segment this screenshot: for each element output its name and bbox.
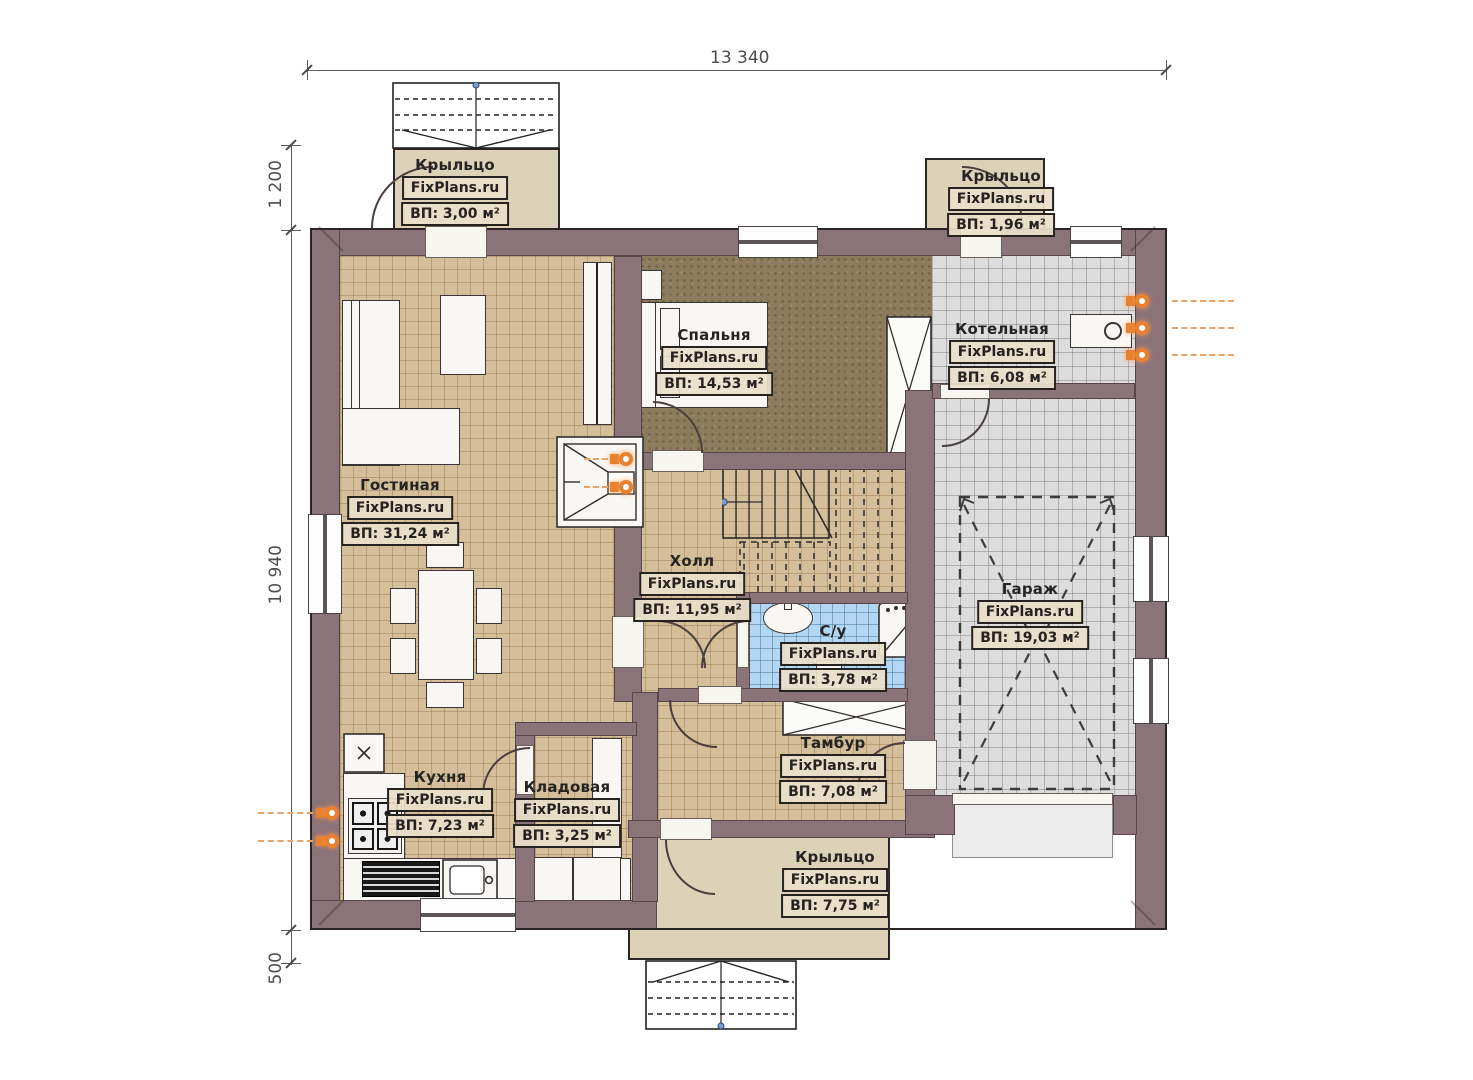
room-area: ВП: 31,24 м² — [341, 522, 459, 546]
utility-square — [1126, 296, 1135, 306]
room-area: ВП: 3,00 м² — [401, 202, 509, 226]
room-label-porch-bottom: Крыльцо FixPlans.ru ВП: 7,75 м² — [781, 848, 889, 918]
utility-line — [1172, 327, 1234, 329]
utility-ring — [1135, 294, 1149, 308]
entry-steps-top-icon — [392, 82, 560, 149]
room-area: ВП: 19,03 м² — [971, 626, 1089, 650]
brand-watermark: FixPlans.ru — [948, 187, 1054, 211]
wall-storage-top — [515, 722, 637, 736]
window-garage-1 — [1133, 536, 1169, 602]
dimension-line-left — [291, 145, 292, 965]
room-area: ВП: 14,53 м² — [655, 372, 773, 396]
kitchen-sink-icon — [442, 859, 498, 901]
utility-connection-icon — [316, 806, 339, 820]
brand-watermark: FixPlans.ru — [782, 868, 888, 892]
brand-watermark: FixPlans.ru — [639, 572, 745, 596]
window-kitchen — [420, 898, 516, 932]
window-living — [308, 514, 342, 614]
dimension-line-top — [307, 70, 1167, 71]
door-opening-vestibule-garage — [903, 740, 937, 790]
room-area: ВП: 3,78 м² — [779, 668, 887, 692]
room-name: Кухня — [414, 768, 467, 786]
wall-garage-bottom-left — [905, 795, 955, 835]
chair — [390, 638, 416, 674]
utility-connection-icon — [1126, 294, 1149, 308]
utility-line — [258, 840, 313, 842]
door-opening-hall-kitchen — [612, 616, 644, 668]
garage-door-opening — [952, 793, 1113, 805]
stove-burner — [352, 802, 374, 825]
utility-connection-icon — [316, 834, 339, 848]
room-area: ВП: 11,95 м² — [633, 598, 751, 622]
window-garage-2 — [1133, 658, 1169, 724]
room-name: Крыльцо — [795, 848, 875, 866]
utility-ring — [619, 452, 633, 466]
coffee-table — [440, 295, 486, 375]
utility-line — [1172, 300, 1234, 302]
brand-watermark: FixPlans.ru — [780, 642, 886, 666]
door-opening-porch-top-left — [425, 226, 487, 258]
room-label-porch-top-right: Крыльцо FixPlans.ru ВП: 1,96 м² — [947, 167, 1055, 237]
dimension-value-top: 13 340 — [710, 48, 769, 68]
brand-watermark: FixPlans.ru — [402, 176, 508, 200]
room-label-living: Гостиная FixPlans.ru ВП: 31,24 м² — [341, 476, 459, 546]
room-label-garage: Гараж FixPlans.ru ВП: 19,03 м² — [971, 580, 1089, 650]
utility-line — [584, 458, 608, 460]
steps-icon — [645, 960, 797, 1030]
stove-burner — [352, 828, 374, 851]
boiler-unit — [1070, 314, 1132, 348]
utility-connection-icon — [1126, 321, 1149, 335]
room-name: Холл — [670, 552, 715, 570]
brand-watermark: FixPlans.ru — [977, 600, 1083, 624]
room-label-hall: Холл FixPlans.ru ВП: 11,95 м² — [633, 552, 751, 622]
utility-square — [316, 808, 325, 818]
brand-watermark: FixPlans.ru — [514, 798, 620, 822]
brand-watermark: FixPlans.ru — [661, 346, 767, 370]
storage-cabinet — [573, 857, 621, 901]
room-name: Гараж — [1002, 580, 1058, 598]
room-label-bedroom: Спальня FixPlans.ru ВП: 14,53 м² — [655, 326, 773, 396]
floor-plan: x — [0, 0, 1473, 1080]
door-opening-bedroom — [652, 450, 704, 472]
room-label-bathroom: С/у FixPlans.ru ВП: 3,78 м² — [779, 622, 887, 692]
window-bedroom — [738, 226, 818, 258]
entry-steps-bottom-icon — [645, 960, 797, 1030]
dining-table — [418, 570, 474, 680]
chair — [476, 588, 502, 624]
utility-square — [316, 836, 325, 846]
brand-watermark: FixPlans.ru — [949, 340, 1055, 364]
room-label-porch-top-left: Крыльцо FixPlans.ru ВП: 3,00 м² — [401, 156, 509, 226]
brand-watermark: FixPlans.ru — [387, 788, 493, 812]
room-name: С/у — [820, 622, 847, 640]
room-label-kitchen: Кухня FixPlans.ru ВП: 7,23 м² — [386, 768, 494, 838]
chair — [390, 588, 416, 624]
room-area: ВП: 1,96 м² — [947, 213, 1055, 237]
utility-ring — [1135, 348, 1149, 362]
room-area: ВП: 7,23 м² — [386, 814, 494, 838]
utility-connection-icon — [1126, 348, 1149, 362]
kitchen-appliance — [362, 861, 440, 897]
utility-square — [1126, 323, 1135, 333]
room-label-boiler: Котельная FixPlans.ru ВП: 6,08 м² — [948, 320, 1056, 390]
room-area: ВП: 3,25 м² — [513, 824, 621, 848]
brand-watermark: FixPlans.ru — [780, 754, 886, 778]
dimension-value-left-lower: 500 — [266, 952, 286, 984]
room-name: Крыльцо — [415, 156, 495, 174]
chair — [426, 682, 464, 708]
room-area: ВП: 7,08 м² — [779, 780, 887, 804]
utility-connection-icon — [610, 480, 633, 494]
chair — [476, 638, 502, 674]
room-name: Гостиная — [360, 476, 440, 494]
utility-line — [584, 486, 608, 488]
utility-square — [610, 482, 619, 492]
dimension-value-left-main: 10 940 — [266, 545, 286, 604]
garage-apron — [952, 800, 1113, 858]
utility-square — [610, 454, 619, 464]
utility-line — [258, 812, 313, 814]
utility-line — [1172, 354, 1234, 356]
brand-watermark: FixPlans.ru — [347, 496, 453, 520]
room-area: ВП: 6,08 м² — [948, 366, 1056, 390]
utility-ring — [619, 480, 633, 494]
bed-headboard — [640, 302, 656, 408]
dimension-value-left-upper: 1 200 — [266, 160, 286, 209]
boiler-gauge — [1104, 322, 1122, 340]
fridge-icon — [343, 733, 385, 773]
room-name: Спальня — [677, 326, 750, 344]
room-name: Тамбур — [801, 734, 866, 752]
room-name: Кладовая — [524, 778, 611, 796]
wall-garage-bottom-right — [1113, 795, 1137, 835]
room-area: ВП: 7,75 м² — [781, 894, 889, 918]
utility-connection-icon — [610, 452, 633, 466]
utility-ring — [325, 806, 339, 820]
sofa-chaise — [342, 408, 460, 465]
window-boiler — [1070, 226, 1122, 258]
room-label-storage: Кладовая FixPlans.ru ВП: 3,25 м² — [513, 778, 621, 848]
tv-panel — [583, 262, 612, 425]
wall-bathroom-top — [736, 592, 908, 604]
room-label-vestibule: Тамбур FixPlans.ru ВП: 7,08 м² — [779, 734, 887, 804]
utility-ring — [325, 834, 339, 848]
room-name: Котельная — [955, 320, 1049, 338]
door-opening-vestibule-porch — [660, 818, 712, 840]
room-name: Крыльцо — [961, 167, 1041, 185]
utility-ring — [1135, 321, 1149, 335]
steps-icon — [392, 82, 560, 149]
utility-square — [1126, 350, 1135, 360]
